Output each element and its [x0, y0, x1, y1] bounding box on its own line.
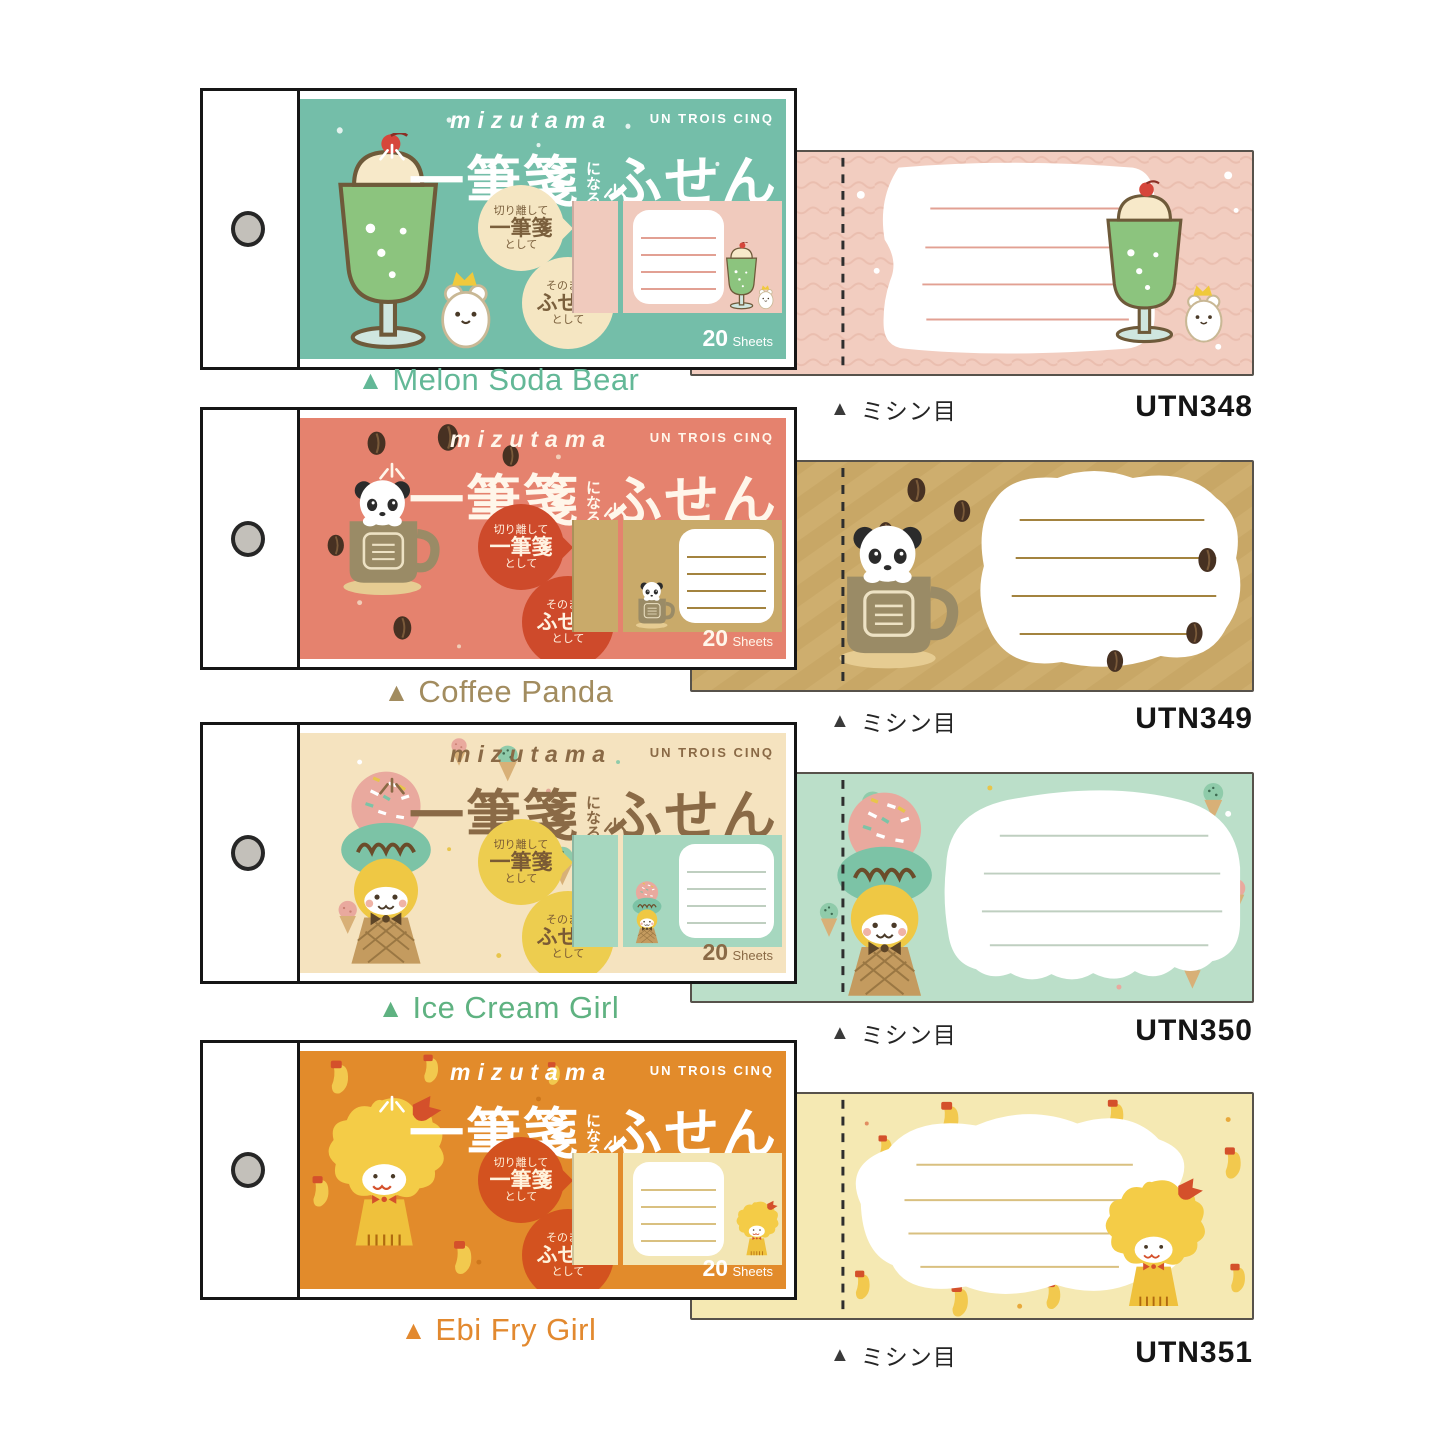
- booklet-package: mizutama UN TROIS CINQ 一筆箋 になる ふせん 切り離して…: [200, 407, 797, 670]
- note-preview: [572, 520, 782, 632]
- cover-art: mizutama UN TROIS CINQ 一筆箋 になる ふせん 切り離して…: [300, 733, 786, 973]
- cover-art: mizutama UN TROIS CINQ 一筆箋 になる ふせん 切り離して…: [300, 99, 786, 359]
- binding-strip: [203, 91, 300, 367]
- ice-cream-girl-mini: [626, 880, 668, 944]
- binding-strip: [203, 1043, 300, 1297]
- product-name-label: ▲ Ebi Fry Girl: [200, 1312, 797, 1348]
- product-code: UTN349: [1135, 702, 1253, 736]
- bubble-letter-paper: 切り離して 一筆箋 として: [478, 504, 564, 590]
- sparkle-icon: [602, 1135, 628, 1152]
- perforation-caption: ▲ ミシン目: [830, 704, 957, 738]
- collection-name: UN TROIS CINQ: [650, 430, 774, 445]
- sparkle-icon: [377, 1095, 407, 1115]
- binding-strip: [203, 725, 300, 981]
- title-connector: になる: [583, 1113, 604, 1158]
- booklet-package: mizutama UN TROIS CINQ 一筆箋 になる ふせん 切り離して…: [200, 722, 797, 984]
- perforation-caption: ▲ ミシン目: [830, 1338, 957, 1372]
- triangle-icon: ▲: [384, 679, 410, 705]
- punch-hole-icon: [231, 521, 265, 557]
- preview-writing-area: [679, 844, 774, 938]
- triangle-icon: ▲: [401, 1317, 427, 1343]
- product-name-label: ▲ Coffee Panda: [200, 674, 797, 710]
- note-preview: [572, 1153, 782, 1265]
- sheet-count: 20 Sheets: [702, 939, 773, 966]
- brand-logo: mizutama: [450, 1059, 612, 1086]
- ebi-fry-girl-mini: [732, 1200, 780, 1262]
- sparkle-icon: [602, 183, 628, 200]
- bubble-letter-paper: 切り離して 一筆箋 として: [478, 819, 564, 905]
- bubble-letter-paper: 切り離して 一筆箋 として: [478, 1137, 564, 1223]
- punch-hole-icon: [231, 1152, 265, 1188]
- booklet-package: mizutama UN TROIS CINQ 一筆箋 になる ふせん 切り離して…: [200, 1040, 797, 1300]
- product-code: UTN351: [1135, 1336, 1253, 1370]
- punch-hole-icon: [231, 835, 265, 871]
- triangle-icon: ▲: [830, 399, 850, 419]
- brand-logo: mizutama: [450, 426, 612, 453]
- collection-name: UN TROIS CINQ: [650, 111, 774, 126]
- binding-strip: [203, 410, 300, 667]
- preview-sheet: [623, 1153, 782, 1265]
- product-code: UTN350: [1135, 1014, 1253, 1048]
- sheet-count: 20 Sheets: [702, 625, 773, 652]
- preview-torn-strip: [572, 201, 618, 313]
- collection-name: UN TROIS CINQ: [650, 745, 774, 760]
- bubble-letter-paper: 切り離して 一筆箋 として: [478, 185, 564, 271]
- booklet-package: mizutama UN TROIS CINQ 一筆箋 になる ふせん 切り離して…: [200, 88, 797, 370]
- punch-hole-icon: [231, 211, 265, 247]
- sparkle-icon: [602, 817, 628, 834]
- cover-art: mizutama UN TROIS CINQ 一筆箋 になる ふせん 切り離して…: [300, 1051, 786, 1289]
- cover-art: mizutama UN TROIS CINQ 一筆箋 になる ふせん 切り離して…: [300, 418, 786, 659]
- preview-writing-area: [633, 210, 724, 304]
- sparkle-icon: [377, 462, 407, 482]
- preview-sheet: [623, 835, 782, 947]
- sparkle-icon: [602, 502, 628, 519]
- sparkle-icon: [377, 143, 407, 163]
- preview-sheet: [623, 520, 782, 632]
- perforation-caption: ▲ ミシン目: [830, 392, 957, 426]
- note-preview: [572, 201, 782, 313]
- collection-name: UN TROIS CINQ: [650, 1063, 774, 1078]
- preview-torn-strip: [572, 520, 618, 632]
- triangle-icon: ▲: [830, 1345, 850, 1365]
- preview-writing-area: [633, 1162, 724, 1256]
- preview-torn-strip: [572, 835, 618, 947]
- triangle-icon: ▲: [830, 1023, 850, 1043]
- preview-torn-strip: [572, 1153, 618, 1265]
- sheet-count: 20 Sheets: [702, 325, 773, 352]
- preview-writing-area: [679, 529, 774, 623]
- triangle-icon: ▲: [830, 711, 850, 731]
- title-connector: になる: [583, 480, 604, 525]
- product-code: UTN348: [1135, 390, 1253, 424]
- coffee-panda-mini: [626, 577, 682, 629]
- note-preview: [572, 835, 782, 947]
- product-name-label: ▲ Melon Soda Bear: [200, 362, 797, 398]
- triangle-icon: ▲: [358, 367, 384, 393]
- sparkle-icon: [377, 777, 407, 797]
- sheet-count: 20 Sheets: [702, 1255, 773, 1282]
- melon-soda-bear-mini: [718, 242, 780, 310]
- preview-sheet: [623, 201, 782, 313]
- triangle-icon: ▲: [378, 995, 404, 1021]
- title-connector: になる: [583, 795, 604, 840]
- title-connector: になる: [583, 161, 604, 206]
- brand-logo: mizutama: [450, 741, 612, 768]
- product-name-label: ▲ Ice Cream Girl: [200, 990, 797, 1026]
- brand-logo: mizutama: [450, 107, 612, 134]
- perforation-caption: ▲ ミシン目: [830, 1016, 957, 1050]
